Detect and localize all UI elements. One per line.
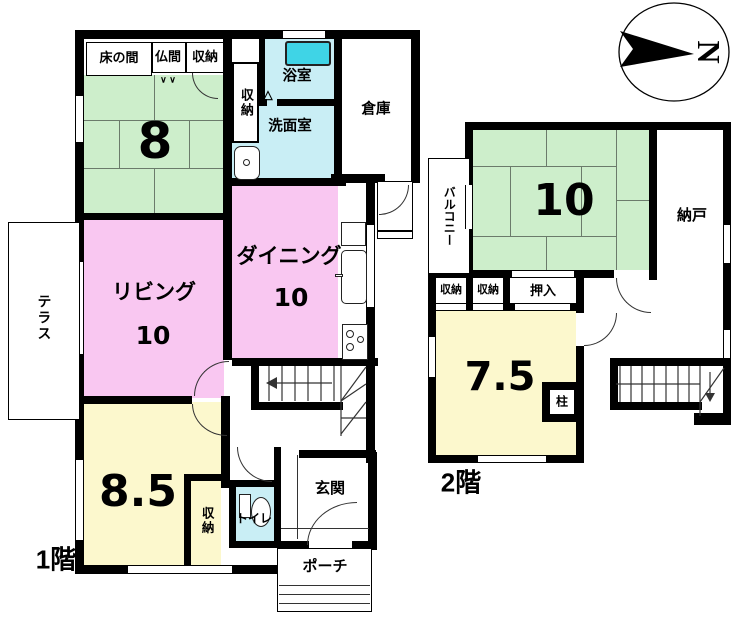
kitchen-faucet — [335, 274, 343, 277]
tatami-line — [510, 166, 511, 236]
tatami-line — [546, 236, 547, 270]
room-size-living: 10 — [136, 323, 171, 349]
porch-step-line — [279, 594, 370, 595]
room-label-toilet: トイレ — [236, 513, 272, 526]
window — [478, 455, 546, 463]
room-label-closet-85: 収納 — [199, 507, 212, 536]
room-label-dining: ダイニング — [237, 246, 342, 268]
room-label-balcony: バルコニー — [443, 186, 456, 246]
stairs-second-floor — [614, 364, 726, 418]
floor2-title: 2階 — [441, 469, 481, 496]
window — [283, 30, 325, 39]
room-label-terrace: テラス — [37, 294, 52, 342]
room-label-storehouse: 倉庫 — [362, 102, 391, 117]
wall — [75, 30, 420, 39]
door-arc — [307, 502, 357, 545]
bath-door-mark-icon: △ — [263, 89, 272, 102]
wall — [465, 122, 731, 130]
wall — [334, 30, 342, 183]
room-label-closet-a: 収納 — [440, 285, 462, 297]
tatami-line — [473, 236, 617, 237]
window — [128, 565, 232, 574]
wall — [274, 447, 281, 548]
window — [366, 225, 375, 307]
wall — [503, 270, 510, 311]
door-arc — [584, 313, 617, 346]
wall — [649, 270, 657, 278]
wall — [576, 270, 584, 313]
room-label-closet-hall: 収納 — [239, 88, 253, 118]
genkan-step-line — [297, 455, 298, 539]
wall — [723, 263, 731, 330]
closet-door-marks-icon: ∨ ∨ — [160, 75, 176, 84]
wall — [223, 33, 232, 360]
wall — [79, 396, 192, 404]
tatami-line — [119, 120, 120, 168]
door-arc — [237, 447, 272, 482]
window — [723, 225, 731, 263]
backdoor-step — [377, 231, 413, 239]
room-label-living: リビング — [112, 282, 196, 304]
floor-plan: △ ∨ ∨ — [0, 0, 740, 618]
room-size-85: 8.5 — [99, 469, 177, 515]
wall — [184, 474, 224, 481]
sliding-door — [512, 270, 574, 278]
kitchen-counter-icon — [341, 222, 366, 246]
window — [428, 337, 436, 377]
room-label-butsuma: 仏間 — [155, 50, 181, 64]
wall — [649, 130, 657, 280]
tatami-line — [546, 130, 547, 166]
sliding-door — [436, 303, 466, 311]
stairs-first-floor — [257, 364, 371, 446]
wall — [184, 474, 191, 566]
stove-icon — [342, 324, 368, 360]
bathtub — [285, 41, 331, 66]
wall — [229, 541, 281, 548]
wall — [79, 213, 229, 220]
wall — [366, 183, 375, 228]
room-label-tokonoma: 床の間 — [99, 51, 138, 65]
sliding-door — [515, 303, 570, 311]
window — [465, 185, 473, 229]
tatami-line — [189, 120, 190, 168]
room-label-oshiire: 押入 — [530, 284, 556, 298]
room-label-closet-top: 収納 — [192, 50, 218, 64]
room-dining — [232, 183, 338, 358]
room-label-bath: 浴室 — [283, 69, 312, 84]
stove-burner — [346, 330, 354, 338]
window — [723, 330, 731, 358]
room-label-washroom: 洗面室 — [268, 119, 312, 134]
room-size-tatami10: 10 — [533, 178, 594, 224]
wall — [411, 30, 420, 183]
room-label-closet-b: 収納 — [477, 285, 499, 297]
room-label-entrance: 玄関 — [315, 481, 345, 497]
room-size-dining: 10 — [274, 285, 309, 311]
room-label-pillar: 柱 — [556, 396, 568, 409]
window — [75, 460, 84, 540]
wall — [368, 452, 377, 550]
wall — [277, 99, 334, 106]
room-size-75: 7.5 — [465, 356, 536, 398]
room-label-porch: ポーチ — [302, 559, 347, 575]
compass: N — [612, 0, 736, 104]
wall — [229, 480, 281, 487]
door-arc — [616, 278, 651, 313]
north-label: N — [691, 40, 727, 63]
kitchen-sink-icon — [341, 250, 367, 304]
wall — [723, 122, 731, 225]
window — [75, 96, 84, 142]
floor1-title: 1階 — [36, 546, 76, 573]
room-label-storeroom: 納戸 — [677, 208, 707, 224]
wall — [299, 450, 376, 458]
porch-step-line — [279, 603, 370, 604]
room-size-tatami8: 8 — [138, 115, 173, 168]
stove-burner — [346, 343, 354, 351]
wall — [229, 480, 236, 548]
tatami-line — [154, 168, 155, 216]
wall — [466, 270, 473, 311]
washbasin-drain — [243, 159, 250, 166]
tatami-line — [473, 166, 617, 167]
stove-burner — [357, 336, 364, 343]
porch-step-line — [279, 585, 370, 586]
sliding-door — [473, 303, 503, 311]
tatami-line — [616, 200, 649, 201]
